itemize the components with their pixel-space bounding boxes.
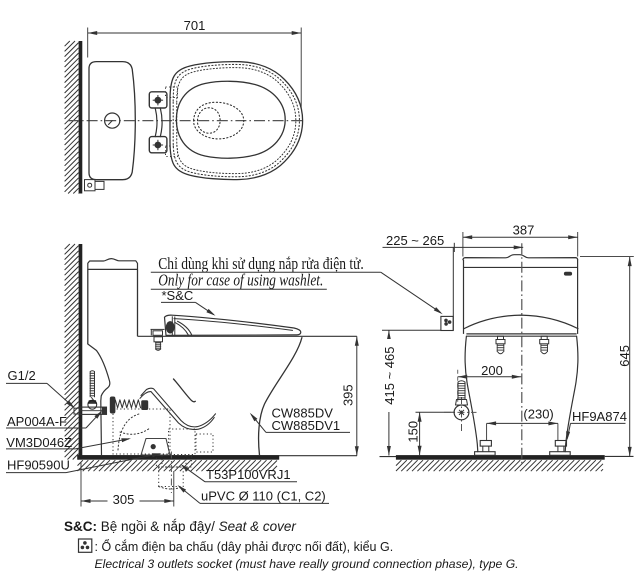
svg-text:645: 645 bbox=[617, 345, 632, 367]
svg-text:387: 387 bbox=[513, 222, 535, 237]
svg-text:CW885DV1: CW885DV1 bbox=[272, 418, 341, 433]
svg-text:S&C: Bệ ngồi & nắp đậy/ Seat &: S&C: Bệ ngồi & nắp đậy/ Seat & cover bbox=[64, 519, 296, 534]
svg-text:AP004A-F: AP004A-F bbox=[7, 414, 67, 429]
svg-text:Only for case of using washlet: Only for case of using washlet. bbox=[158, 271, 323, 290]
svg-text:305: 305 bbox=[113, 492, 135, 507]
svg-text:(230): (230) bbox=[523, 407, 553, 422]
svg-text:uPVC Ø 110 (C1, C2): uPVC Ø 110 (C1, C2) bbox=[201, 488, 326, 503]
svg-text:200: 200 bbox=[481, 363, 503, 378]
svg-text:415 ~ 465: 415 ~ 465 bbox=[382, 346, 397, 404]
svg-text:HF9A874: HF9A874 bbox=[572, 409, 627, 424]
svg-text:T53P100VRJ1: T53P100VRJ1 bbox=[206, 467, 291, 482]
svg-text:395: 395 bbox=[341, 384, 356, 406]
svg-text:701: 701 bbox=[184, 18, 206, 33]
svg-text:G1/2: G1/2 bbox=[8, 368, 36, 383]
svg-text:*S&C: *S&C bbox=[162, 288, 194, 303]
svg-text:: Ổ cắm điện ba chấu (dây phải: : Ổ cắm điện ba chấu (dây phải được nối … bbox=[95, 539, 394, 554]
svg-text:VM3D046Z: VM3D046Z bbox=[6, 435, 72, 450]
svg-text:HF90590U: HF90590U bbox=[7, 458, 70, 473]
svg-text:150: 150 bbox=[405, 421, 420, 443]
svg-text:225 ~ 265: 225 ~ 265 bbox=[386, 233, 444, 248]
svg-text:Electrical 3 outlets socket (m: Electrical 3 outlets socket (must have r… bbox=[95, 557, 519, 571]
